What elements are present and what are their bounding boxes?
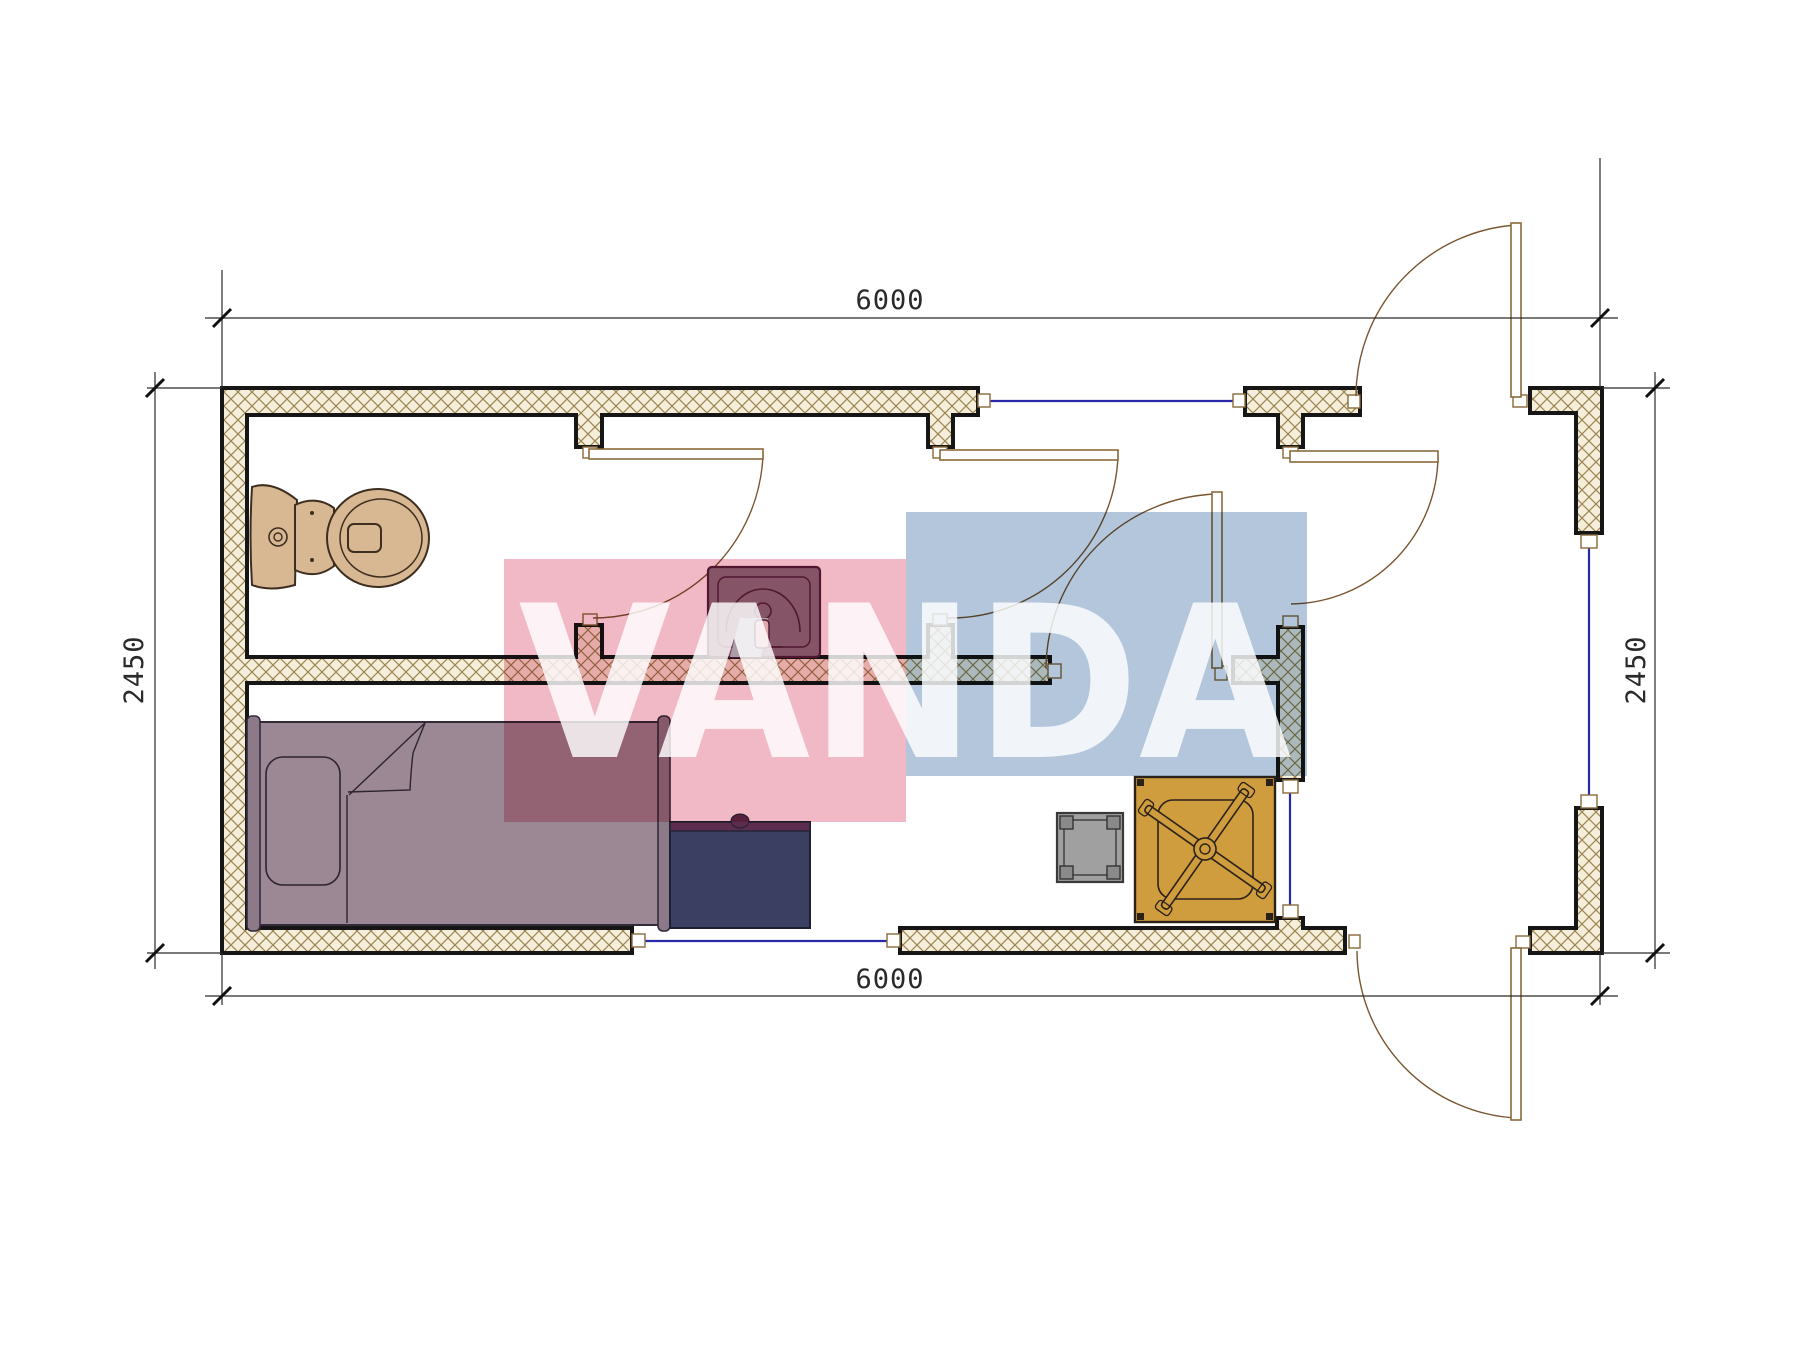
- dimension-left-label: 2450: [119, 635, 150, 704]
- floor-plan-canvas: 6000 6000 2450 2450 VANDA: [0, 0, 1800, 1350]
- watermark-text: VANDA: [518, 561, 1291, 807]
- desk-icon: [670, 814, 810, 928]
- door-leaf-entry-top: [1511, 223, 1521, 397]
- floor-plan-page: 6000 6000 2450 2450 VANDA: [0, 0, 1800, 1350]
- dimension-top-label: 6000: [855, 285, 924, 316]
- dimension-bottom-label: 6000: [855, 964, 924, 995]
- door-leaf-washroom: [940, 450, 1118, 460]
- door-leaf-entry-bottom: [1511, 948, 1521, 1120]
- toilet-bowl: [327, 489, 429, 587]
- side-table-icon: [1057, 813, 1123, 882]
- door-leaf-hall-entry: [1290, 451, 1438, 462]
- dimension-right-label: 2450: [1621, 635, 1652, 704]
- bed-headboard: [247, 716, 260, 931]
- door-leaf-bathroom: [589, 449, 763, 459]
